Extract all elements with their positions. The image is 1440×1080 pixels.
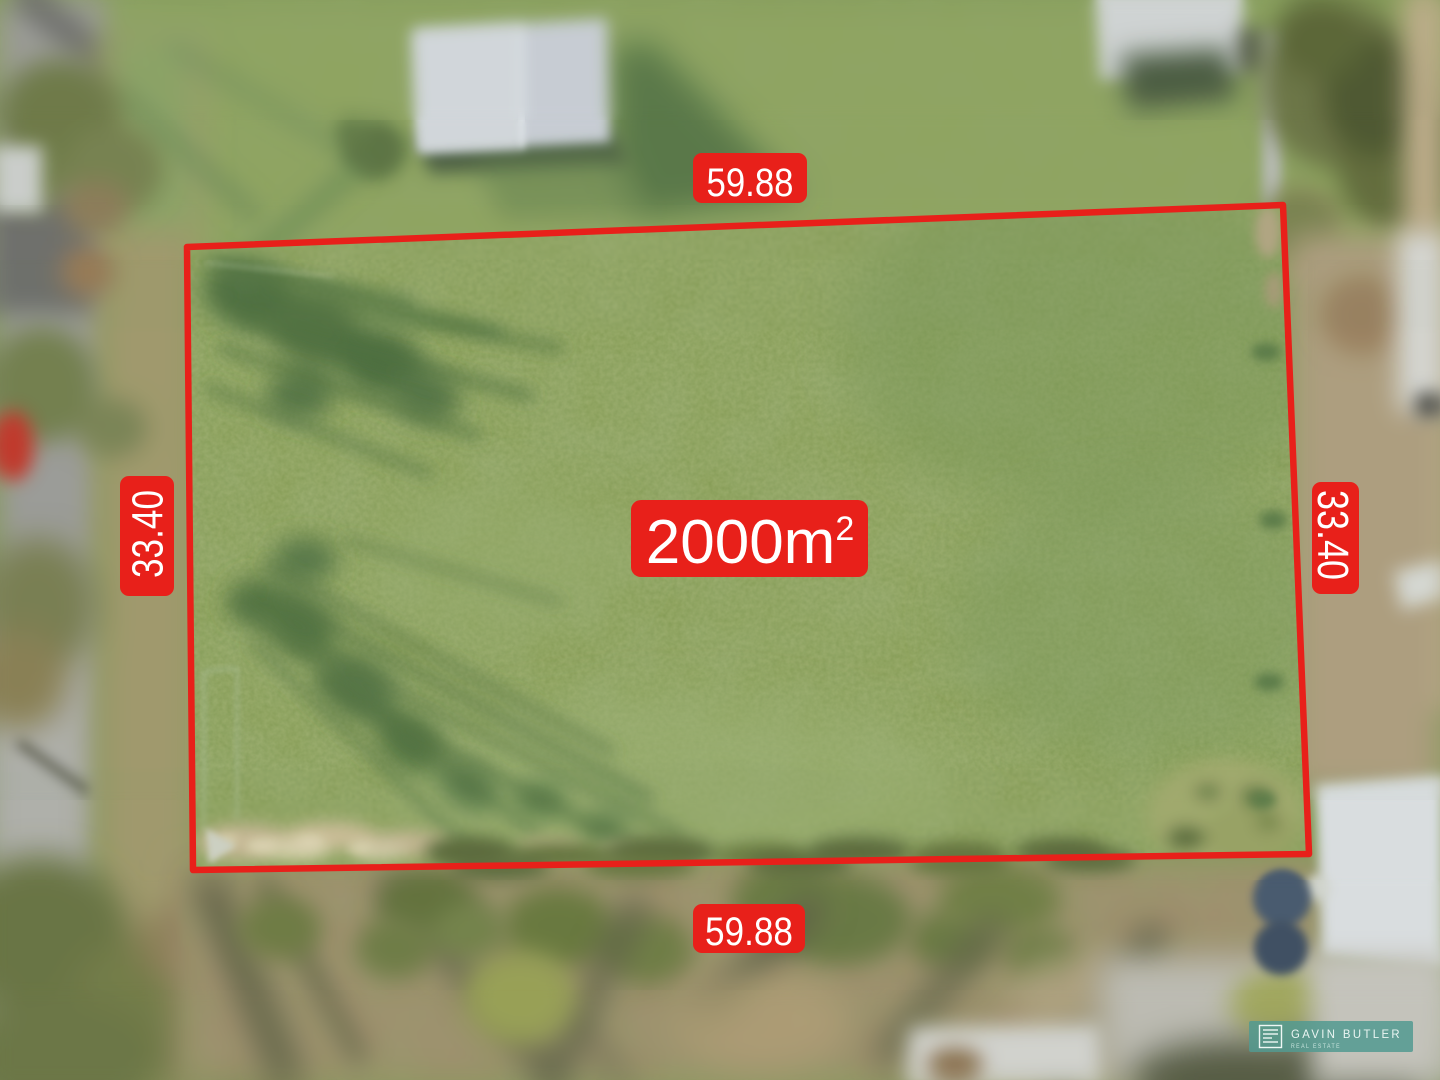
svg-text:59.88: 59.88 xyxy=(707,161,794,205)
svg-text:REAL ESTATE: REAL ESTATE xyxy=(1291,1043,1341,1050)
svg-text:33.40: 33.40 xyxy=(124,490,173,578)
svg-text:2000m2: 2000m2 xyxy=(646,508,855,577)
svg-text:33.40: 33.40 xyxy=(1308,490,1357,580)
svg-text:59.88: 59.88 xyxy=(705,910,793,954)
svg-text:GAVIN BUTLER: GAVIN BUTLER xyxy=(1291,1029,1402,1041)
